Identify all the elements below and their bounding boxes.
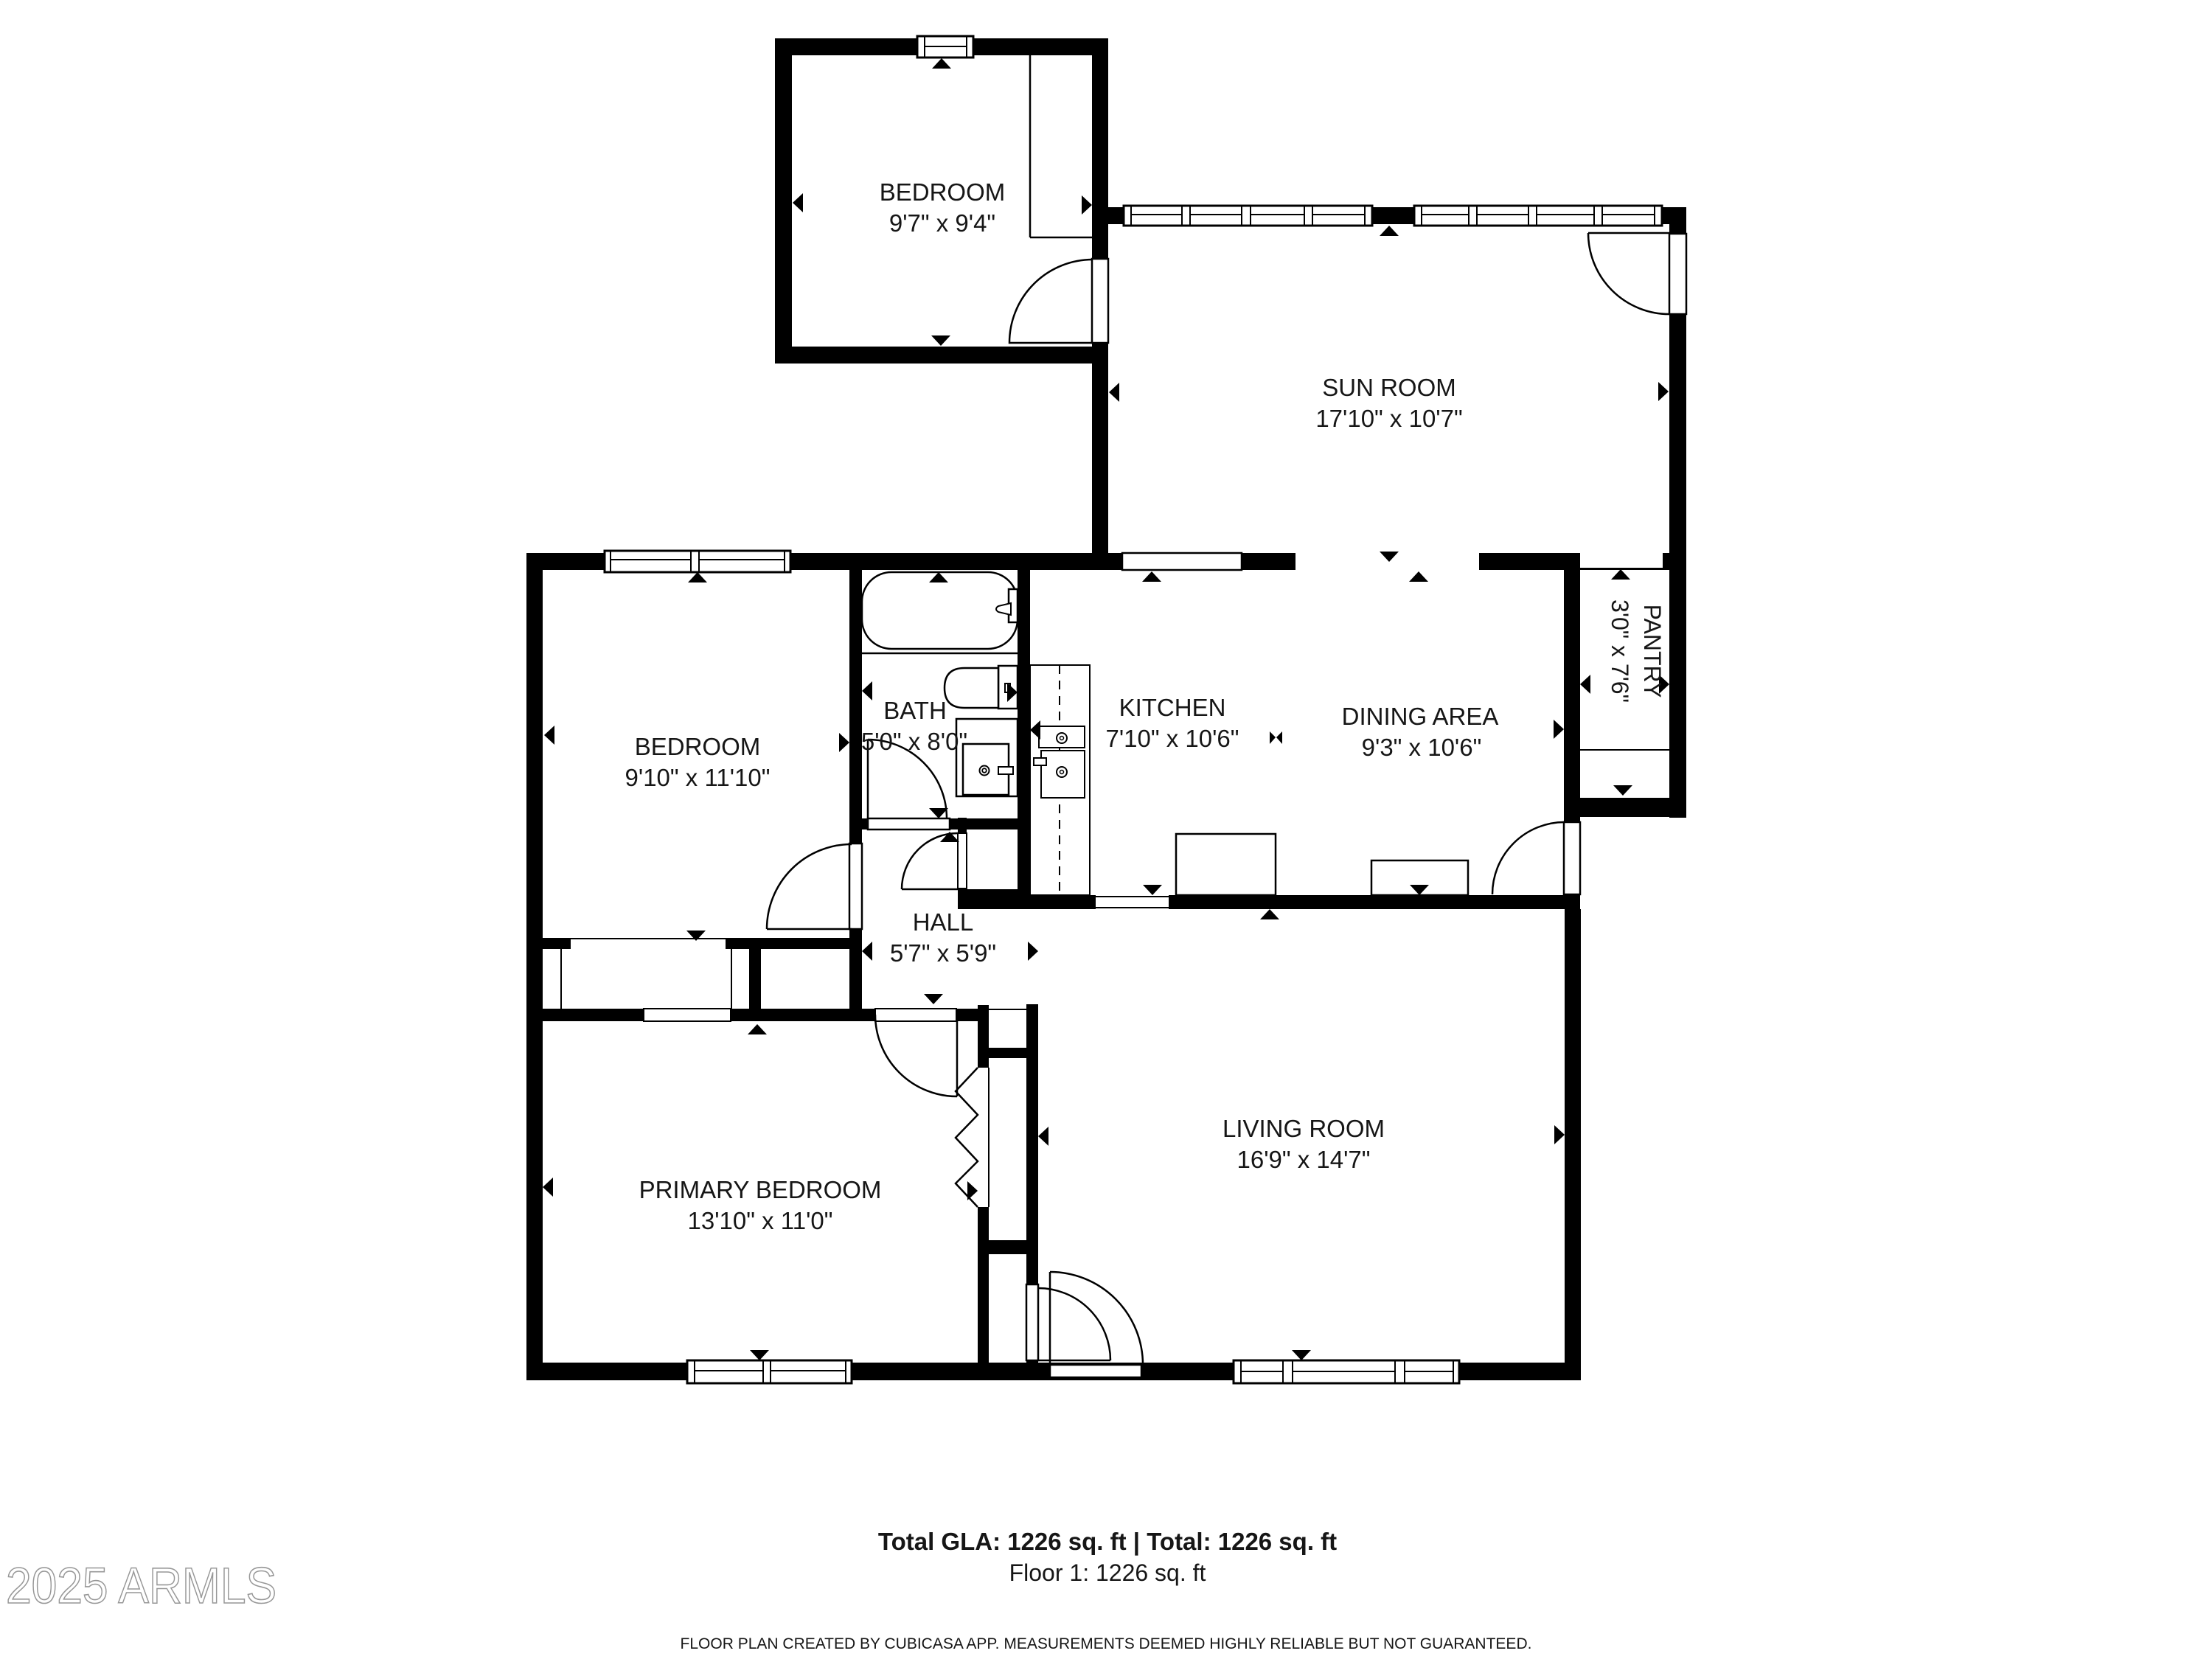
svg-text:SUN ROOM: SUN ROOM <box>1322 374 1456 401</box>
svg-text:5'0" x 8'0": 5'0" x 8'0" <box>861 728 967 755</box>
svg-text:PRIMARY BEDROOM: PRIMARY BEDROOM <box>639 1176 882 1203</box>
svg-text:FLOOR PLAN CREATED BY CUBICASA: FLOOR PLAN CREATED BY CUBICASA APP. MEAS… <box>681 1635 1532 1652</box>
svg-text:13'10" x 11'0": 13'10" x 11'0" <box>688 1207 833 1234</box>
svg-text:DINING AREA: DINING AREA <box>1342 703 1499 730</box>
svg-text:7'10" x 10'6": 7'10" x 10'6" <box>1106 725 1239 752</box>
svg-text:5'7" x 5'9": 5'7" x 5'9" <box>890 939 996 967</box>
svg-text:9'7" x 9'4": 9'7" x 9'4" <box>889 209 995 237</box>
svg-text:BEDROOM: BEDROOM <box>880 178 1006 206</box>
svg-text:3'0" x 7'6": 3'0" x 7'6" <box>1607 599 1633 703</box>
svg-text:Total GLA: 1226 sq. ft | Total: Total GLA: 1226 sq. ft | Total: 1226 sq.… <box>878 1528 1337 1555</box>
svg-text:Floor 1: 1226 sq. ft: Floor 1: 1226 sq. ft <box>1009 1559 1206 1586</box>
svg-text:BEDROOM: BEDROOM <box>635 733 761 760</box>
svg-text:17'10" x 10'7": 17'10" x 10'7" <box>1315 405 1462 432</box>
svg-text:HALL: HALL <box>913 908 974 936</box>
svg-text:16'9" x 14'7": 16'9" x 14'7" <box>1237 1146 1371 1173</box>
svg-text:KITCHEN: KITCHEN <box>1119 694 1226 721</box>
svg-text:9'3" x 10'6": 9'3" x 10'6" <box>1362 734 1482 761</box>
svg-text:9'10" x 11'10": 9'10" x 11'10" <box>625 764 771 791</box>
svg-text:BATH: BATH <box>883 697 947 724</box>
svg-text:LIVING ROOM: LIVING ROOM <box>1222 1115 1385 1142</box>
svg-text:PANTRY: PANTRY <box>1639 605 1666 698</box>
svg-text:2025 ARMLS: 2025 ARMLS <box>6 1557 276 1614</box>
